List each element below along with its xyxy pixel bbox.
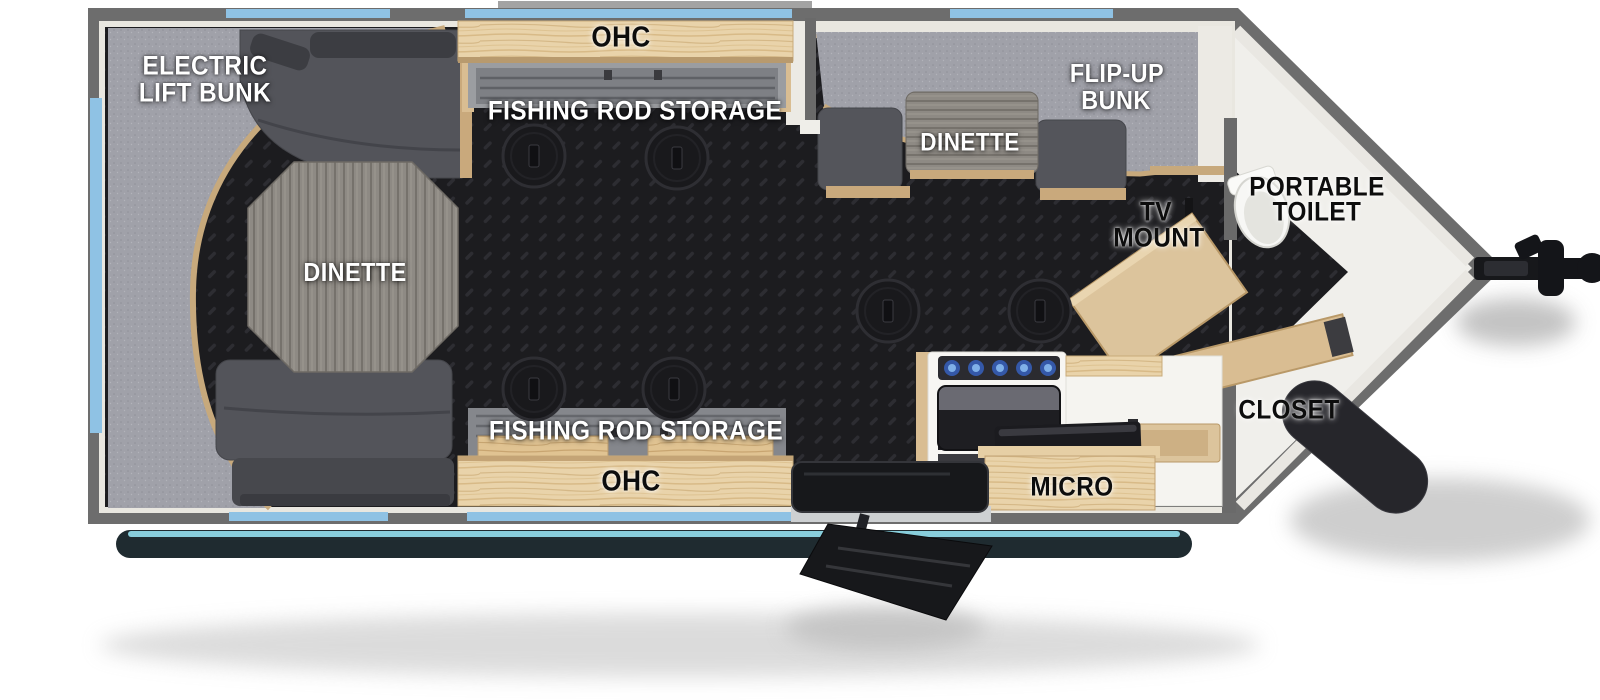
window-bottom-2 bbox=[467, 512, 795, 521]
partition-wall-top bbox=[805, 18, 816, 130]
floorplan-drawing bbox=[0, 0, 1600, 700]
left-dinette-table bbox=[248, 162, 458, 372]
hitch bbox=[1474, 233, 1600, 296]
fishing-hole bbox=[503, 358, 565, 420]
entry-mat bbox=[792, 462, 988, 512]
fishing-hole bbox=[646, 127, 708, 189]
awning-tube bbox=[116, 530, 1192, 558]
micro-cabinet bbox=[985, 456, 1155, 510]
fishing-hole bbox=[1009, 280, 1071, 342]
ohc-bottom-cabinet bbox=[458, 456, 793, 506]
floorplan-canvas: ELECTRIC LIFT BUNK DINETTE OHC FISHING R… bbox=[0, 0, 1600, 700]
window-top-1 bbox=[226, 9, 390, 18]
fishing-hole bbox=[503, 125, 565, 187]
window-top-3 bbox=[950, 9, 1113, 18]
right-dinette-bench-left bbox=[818, 108, 902, 190]
fishing-hole bbox=[643, 358, 705, 420]
window-bottom-1 bbox=[229, 512, 388, 521]
right-dinette-bench-right bbox=[1036, 120, 1126, 192]
window-rear bbox=[90, 98, 102, 433]
fishing-hole bbox=[857, 280, 919, 342]
right-dinette-table bbox=[906, 92, 1038, 174]
ohc-bottom-assembly bbox=[458, 408, 793, 506]
ohc-top-cabinet bbox=[458, 21, 793, 61]
window-top-2 bbox=[465, 9, 792, 18]
